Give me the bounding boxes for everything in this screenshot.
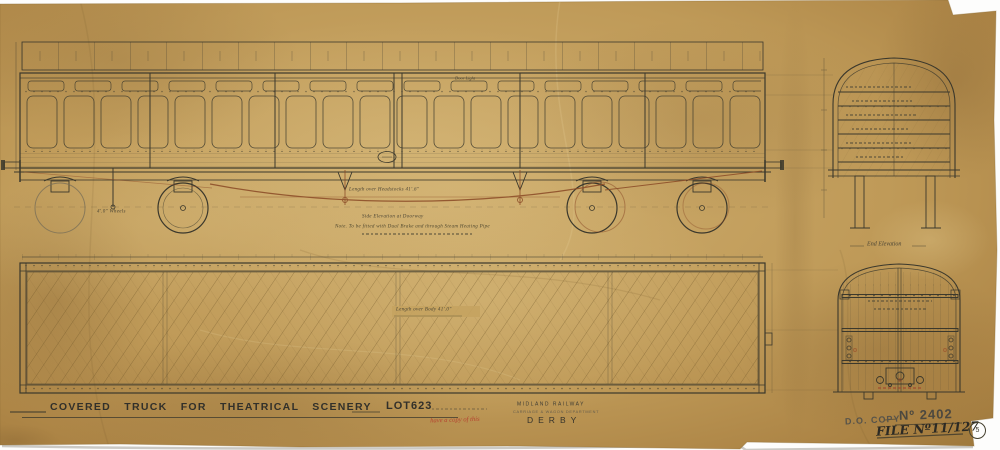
department-line: CARRIAGE & WAGON DEPARTMENT — [513, 410, 599, 414]
illegible-annotation — [868, 300, 932, 302]
illegible-annotation — [852, 128, 910, 130]
illegible-annotation — [856, 156, 904, 158]
illegible-annotation — [852, 100, 912, 102]
sheet-number-badge: 5 — [969, 422, 986, 439]
sheet-title: COVERED TRUCK FOR THEATRICAL SCENERY — [50, 402, 372, 413]
works-name: DERBY — [527, 416, 581, 425]
door-light-label: Door Light — [455, 76, 475, 81]
railway-name: MIDLAND RAILWAY — [517, 402, 585, 407]
ventilator-panels — [24, 80, 761, 92]
illegible-annotation — [846, 114, 918, 116]
doorway-label: Side Elevation at Doorway — [362, 214, 424, 219]
fitting-note: Note. To be fitted with Dual Brake and t… — [335, 224, 490, 229]
red-ink-note: have a copy of this — [430, 415, 480, 423]
drawing-linework — [0, 0, 1000, 450]
illegible-annotation — [846, 142, 912, 144]
illegible-red-annotation — [878, 387, 922, 389]
plan-view — [20, 254, 838, 393]
length-over-headstocks: Length over Headstocks 41'.6" — [349, 187, 419, 192]
lot-number: LOT623 — [386, 401, 432, 412]
drawing-sheet: COVERED TRUCK FOR THEATRICAL SCENERY LOT… — [0, 0, 1000, 450]
body-panels — [24, 94, 761, 150]
plan-length-label: Length over Body 41'.0" — [396, 307, 452, 312]
illegible-annotation — [874, 308, 926, 310]
illegible-annotation — [846, 86, 912, 88]
illegible-pencil-note — [432, 408, 487, 410]
illegible-note-line — [362, 233, 472, 235]
wheels-label: 4'.0" Wheels — [97, 209, 126, 214]
end-elevation-label: End Elevation — [867, 241, 901, 247]
